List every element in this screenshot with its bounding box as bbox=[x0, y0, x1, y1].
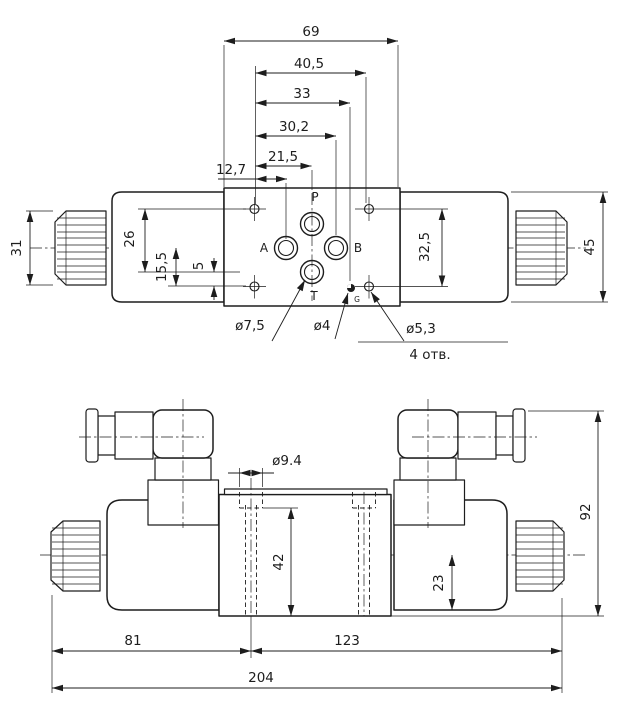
cable-gland-left bbox=[86, 409, 153, 462]
front-nut-right bbox=[516, 521, 564, 591]
gauge-port-dot bbox=[347, 284, 355, 292]
svg-text:42: 42 bbox=[271, 553, 287, 570]
svg-text:ø5,3: ø5,3 bbox=[406, 321, 436, 337]
knurled-knob-left bbox=[55, 211, 106, 285]
dim-204: 204 bbox=[52, 670, 562, 688]
cable-gland-right bbox=[458, 409, 525, 462]
port-label-p: P bbox=[311, 190, 318, 204]
svg-text:45: 45 bbox=[582, 238, 598, 255]
dim-9-4: ø9.4 bbox=[228, 453, 302, 473]
valve-body-front bbox=[219, 495, 391, 617]
svg-text:4 отв.: 4 отв. bbox=[409, 347, 450, 363]
dim-45: 45 bbox=[582, 192, 603, 302]
svg-text:12,7: 12,7 bbox=[216, 162, 246, 178]
svg-text:81: 81 bbox=[124, 633, 141, 649]
dim-40-5: 40,5 bbox=[256, 56, 367, 73]
svg-text:5: 5 bbox=[191, 262, 207, 271]
dim-81: 81 bbox=[52, 633, 251, 651]
svg-text:ø9.4: ø9.4 bbox=[272, 453, 302, 469]
port-label-g: G bbox=[354, 295, 360, 304]
technical-drawing-sheet: P A B T G 69 40,5 33 30,2 21,5 bbox=[0, 0, 618, 704]
svg-text:92: 92 bbox=[578, 503, 594, 520]
svg-text:33: 33 bbox=[293, 86, 310, 102]
svg-text:ø7,5: ø7,5 bbox=[235, 318, 265, 334]
knurled-knob-right bbox=[516, 211, 567, 285]
svg-text:15,5: 15,5 bbox=[154, 252, 170, 282]
port-label-t: T bbox=[309, 289, 318, 303]
svg-text:23: 23 bbox=[431, 574, 447, 591]
svg-text:31: 31 bbox=[9, 239, 25, 256]
dim-33: 33 bbox=[256, 86, 351, 103]
svg-text:26: 26 bbox=[122, 230, 138, 247]
svg-text:30,2: 30,2 bbox=[279, 119, 309, 135]
dim-30-2: 30,2 bbox=[256, 119, 337, 136]
port-label-b: B bbox=[354, 241, 362, 255]
valve-drawing-svg: P A B T G 69 40,5 33 30,2 21,5 bbox=[0, 0, 618, 704]
dim-123: 123 bbox=[251, 633, 562, 651]
dim-31: 31 bbox=[9, 211, 30, 285]
svg-text:21,5: 21,5 bbox=[268, 149, 298, 165]
svg-text:ø4: ø4 bbox=[314, 318, 331, 334]
coil-flange-right bbox=[394, 480, 465, 525]
svg-text:69: 69 bbox=[302, 24, 319, 40]
dim-92: 92 bbox=[578, 411, 598, 616]
svg-text:32,5: 32,5 bbox=[417, 232, 433, 262]
interface-plate bbox=[225, 489, 388, 495]
svg-text:40,5: 40,5 bbox=[294, 56, 324, 72]
dim-21-5: 21,5 bbox=[256, 149, 312, 166]
plan-view: P A B T G 69 40,5 33 30,2 21,5 bbox=[9, 24, 608, 363]
svg-text:123: 123 bbox=[334, 633, 360, 649]
front-nut-left bbox=[51, 521, 100, 591]
front-view: ø9.4 42 23 92 81 123 204 bbox=[40, 399, 604, 693]
dim-69: 69 bbox=[224, 24, 398, 41]
port-label-a: A bbox=[260, 241, 269, 255]
svg-text:204: 204 bbox=[248, 670, 274, 686]
